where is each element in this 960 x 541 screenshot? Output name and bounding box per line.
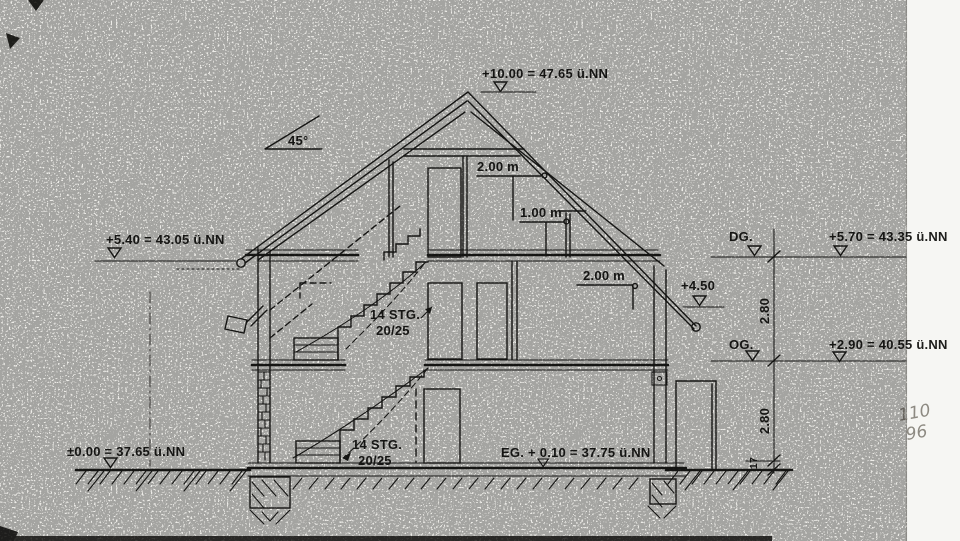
paper-edge-strip bbox=[907, 0, 960, 541]
scan-noise bbox=[0, 0, 907, 541]
scan-artifacts bbox=[0, 0, 907, 541]
blueprint-page: +10.00 = 47.65 ü.NN 45° 2.00 m 1.00 m 2.… bbox=[0, 0, 960, 541]
handwritten-note-2: 96 bbox=[904, 421, 929, 444]
section-drawing: +10.00 = 47.65 ü.NN 45° 2.00 m 1.00 m 2.… bbox=[0, 0, 960, 541]
